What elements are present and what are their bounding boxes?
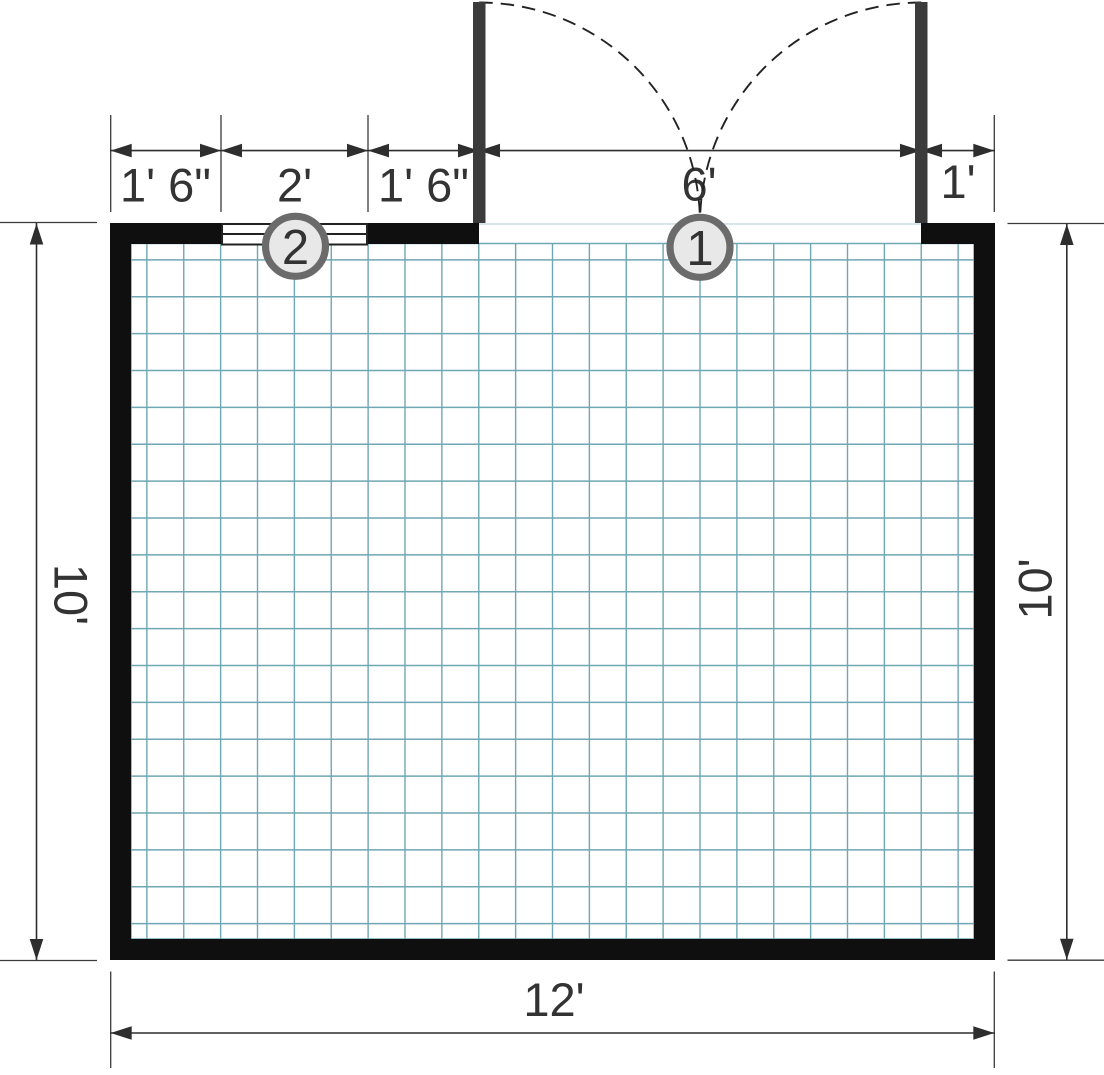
svg-text:12': 12' [523, 973, 584, 1026]
svg-text:1' 6": 1' 6" [378, 159, 469, 212]
svg-text:1: 1 [686, 222, 713, 276]
svg-text:10': 10' [45, 564, 98, 625]
svg-text:2': 2' [277, 159, 312, 212]
svg-text:1' 6": 1' 6" [120, 159, 211, 212]
svg-text:2: 2 [282, 221, 309, 275]
svg-text:10': 10' [1008, 558, 1061, 619]
svg-text:1': 1' [940, 155, 975, 208]
